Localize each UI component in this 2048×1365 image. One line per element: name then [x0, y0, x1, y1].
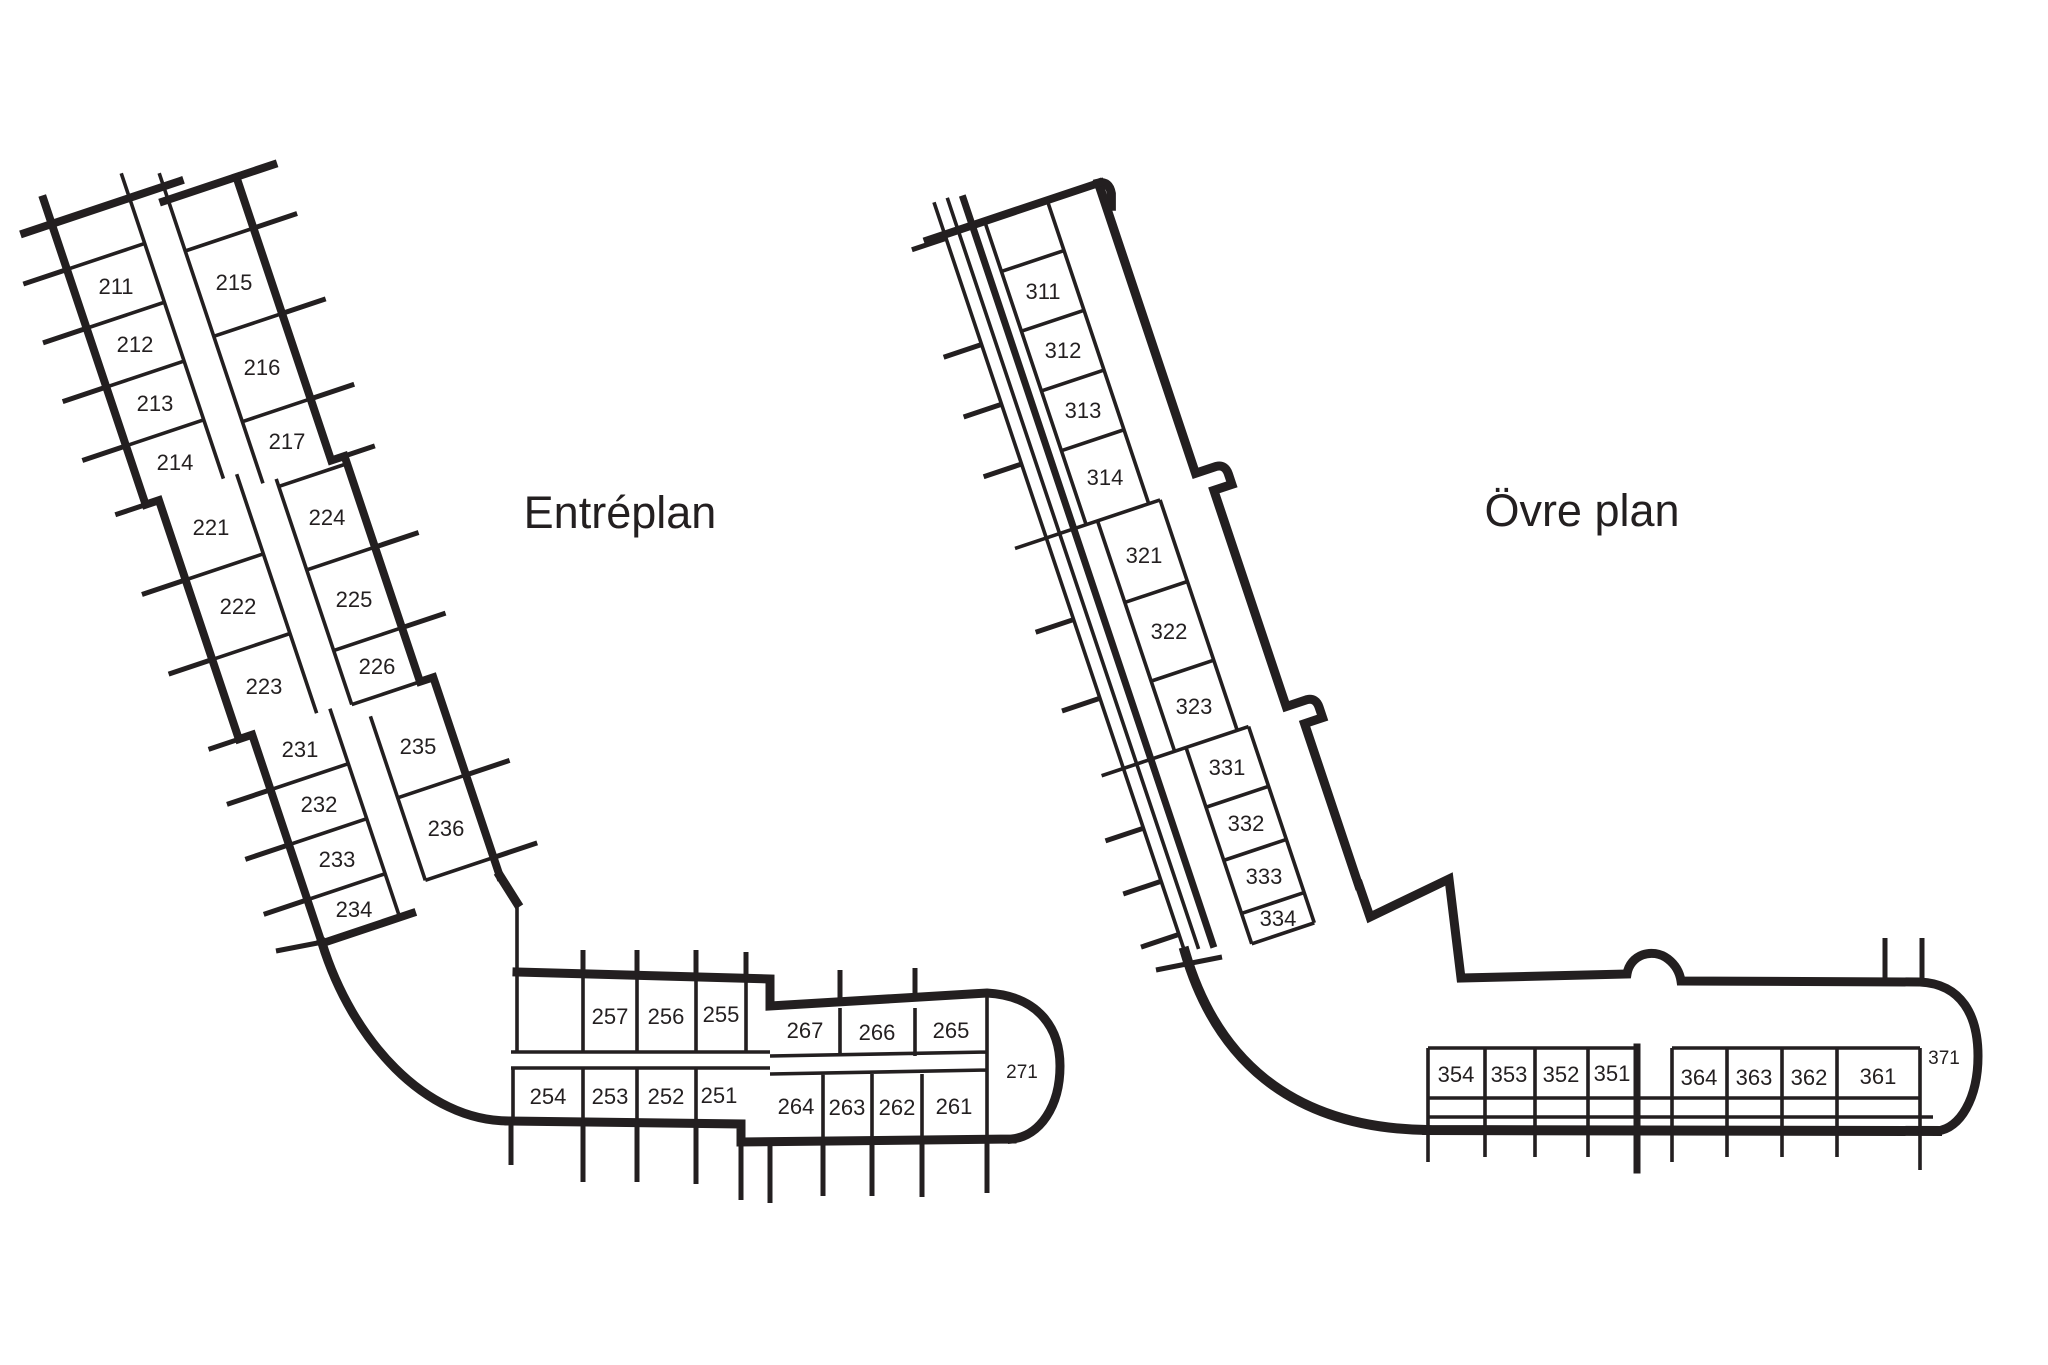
room-label-252: 252 — [648, 1084, 685, 1109]
room-label-212: 212 — [117, 332, 154, 357]
room-label-331: 331 — [1209, 755, 1246, 780]
room-label-371: 371 — [1928, 1048, 1960, 1069]
room-label-322: 322 — [1151, 619, 1188, 644]
room-label-265: 265 — [933, 1018, 970, 1043]
room-label-216: 216 — [244, 355, 281, 380]
room-label-231: 231 — [282, 737, 319, 762]
room-label-217: 217 — [269, 429, 306, 454]
room-label-257: 257 — [592, 1004, 629, 1029]
room-label-353: 353 — [1491, 1062, 1528, 1087]
base-outer-walls — [1359, 879, 1978, 1131]
wing-inner-wall — [963, 199, 1212, 944]
room-label-214: 214 — [157, 450, 194, 475]
room-label-225: 225 — [336, 587, 373, 612]
entreplan-room-labels: 211 212 213 214 215 216 217 221 222 223 … — [98, 270, 1037, 1120]
room-label-266: 266 — [859, 1020, 896, 1045]
room-label-253: 253 — [592, 1084, 629, 1109]
ovreplan: 311 312 313 314 321 322 323 331 332 333 … — [896, 137, 1978, 1170]
room-label-362: 362 — [1791, 1065, 1828, 1090]
room-label-323: 323 — [1176, 694, 1213, 719]
room-label-215: 215 — [216, 270, 253, 295]
room-label-222: 222 — [220, 594, 257, 619]
room-label-213: 213 — [137, 391, 174, 416]
room-label-364: 364 — [1681, 1065, 1718, 1090]
room-label-263: 263 — [829, 1095, 866, 1120]
room-label-224: 224 — [309, 505, 346, 530]
room-label-235: 235 — [400, 734, 437, 759]
room-label-352: 352 — [1543, 1062, 1580, 1087]
base-partition-lines — [511, 903, 987, 1140]
room-label-264: 264 — [778, 1094, 815, 1119]
room-label-321: 321 — [1126, 543, 1163, 568]
room-label-236: 236 — [428, 816, 465, 841]
room-label-333: 333 — [1246, 864, 1283, 889]
room-label-234: 234 — [336, 897, 373, 922]
wing-outer-wall — [1098, 169, 1376, 892]
room-label-223: 223 — [246, 674, 283, 699]
room-label-267: 267 — [787, 1018, 824, 1043]
wing-partition-lines — [903, 160, 1315, 975]
floor-plan-canvas: 211 212 213 214 215 216 217 221 222 223 … — [0, 0, 2048, 1365]
room-label-226: 226 — [359, 654, 396, 679]
room-label-363: 363 — [1736, 1065, 1773, 1090]
floor-plan-page: 211 212 213 214 215 216 217 221 222 223 … — [0, 0, 2048, 1365]
room-label-313: 313 — [1065, 398, 1102, 423]
entreplan-title: Entréplan — [524, 487, 717, 538]
room-label-251: 251 — [701, 1083, 738, 1108]
room-label-271: 271 — [1006, 1062, 1038, 1083]
ovreplan-title: Övre plan — [1484, 485, 1679, 536]
room-label-262: 262 — [879, 1095, 916, 1120]
room-label-254: 254 — [530, 1084, 567, 1109]
room-label-211: 211 — [98, 274, 133, 299]
room-label-233: 233 — [319, 847, 356, 872]
room-label-351: 351 — [1594, 1061, 1631, 1086]
room-label-311: 311 — [1025, 279, 1060, 304]
room-label-361: 361 — [1860, 1064, 1897, 1089]
room-label-334: 334 — [1260, 906, 1297, 931]
entreplan: 211 212 213 214 215 216 217 221 222 223 … — [0, 116, 1060, 1203]
room-label-255: 255 — [703, 1002, 740, 1027]
room-label-221: 221 — [193, 515, 230, 540]
room-label-232: 232 — [301, 792, 338, 817]
room-label-256: 256 — [648, 1004, 685, 1029]
room-label-314: 314 — [1087, 465, 1124, 490]
room-label-261: 261 — [936, 1094, 973, 1119]
wing-berth-ticks — [908, 238, 1179, 947]
room-label-332: 332 — [1228, 811, 1265, 836]
room-label-312: 312 — [1045, 338, 1082, 363]
room-label-354: 354 — [1438, 1062, 1475, 1087]
